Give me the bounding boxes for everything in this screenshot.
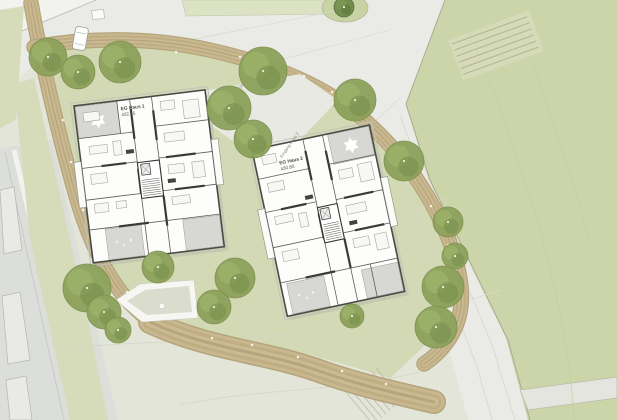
path-light (297, 356, 300, 359)
tree (239, 47, 287, 95)
tree (105, 317, 131, 343)
path-light (251, 344, 254, 347)
path-light (82, 209, 85, 212)
path-light (385, 383, 388, 386)
site-plan-drawing: EG Haus 1 432.75 (0, 0, 617, 420)
shed (92, 9, 105, 19)
path-light (303, 75, 306, 78)
tree (340, 304, 364, 328)
path-light (62, 119, 65, 122)
tree (99, 41, 141, 83)
path-light (126, 291, 129, 294)
tree (422, 266, 464, 308)
path-light (239, 56, 242, 59)
tree (433, 207, 463, 237)
tree (142, 251, 174, 283)
path-light (331, 91, 334, 94)
terrace (105, 225, 145, 260)
tree-dark (334, 0, 354, 17)
tree (334, 79, 376, 121)
tree (61, 55, 95, 89)
path-light (96, 246, 99, 249)
path-light (175, 51, 178, 54)
building-haus-1: EG Haus 1 432.75 (67, 86, 232, 267)
tree (442, 243, 468, 269)
tree (197, 290, 231, 324)
terrace (183, 215, 224, 250)
path-light (211, 337, 214, 340)
tree (415, 306, 457, 348)
path-light (161, 305, 164, 308)
path-light (70, 161, 73, 164)
path-light (341, 370, 344, 373)
tree (384, 141, 424, 181)
site-plan-canvas: EG Haus 1 432.75 (0, 0, 617, 420)
tree (234, 120, 272, 158)
path-light (430, 205, 433, 208)
